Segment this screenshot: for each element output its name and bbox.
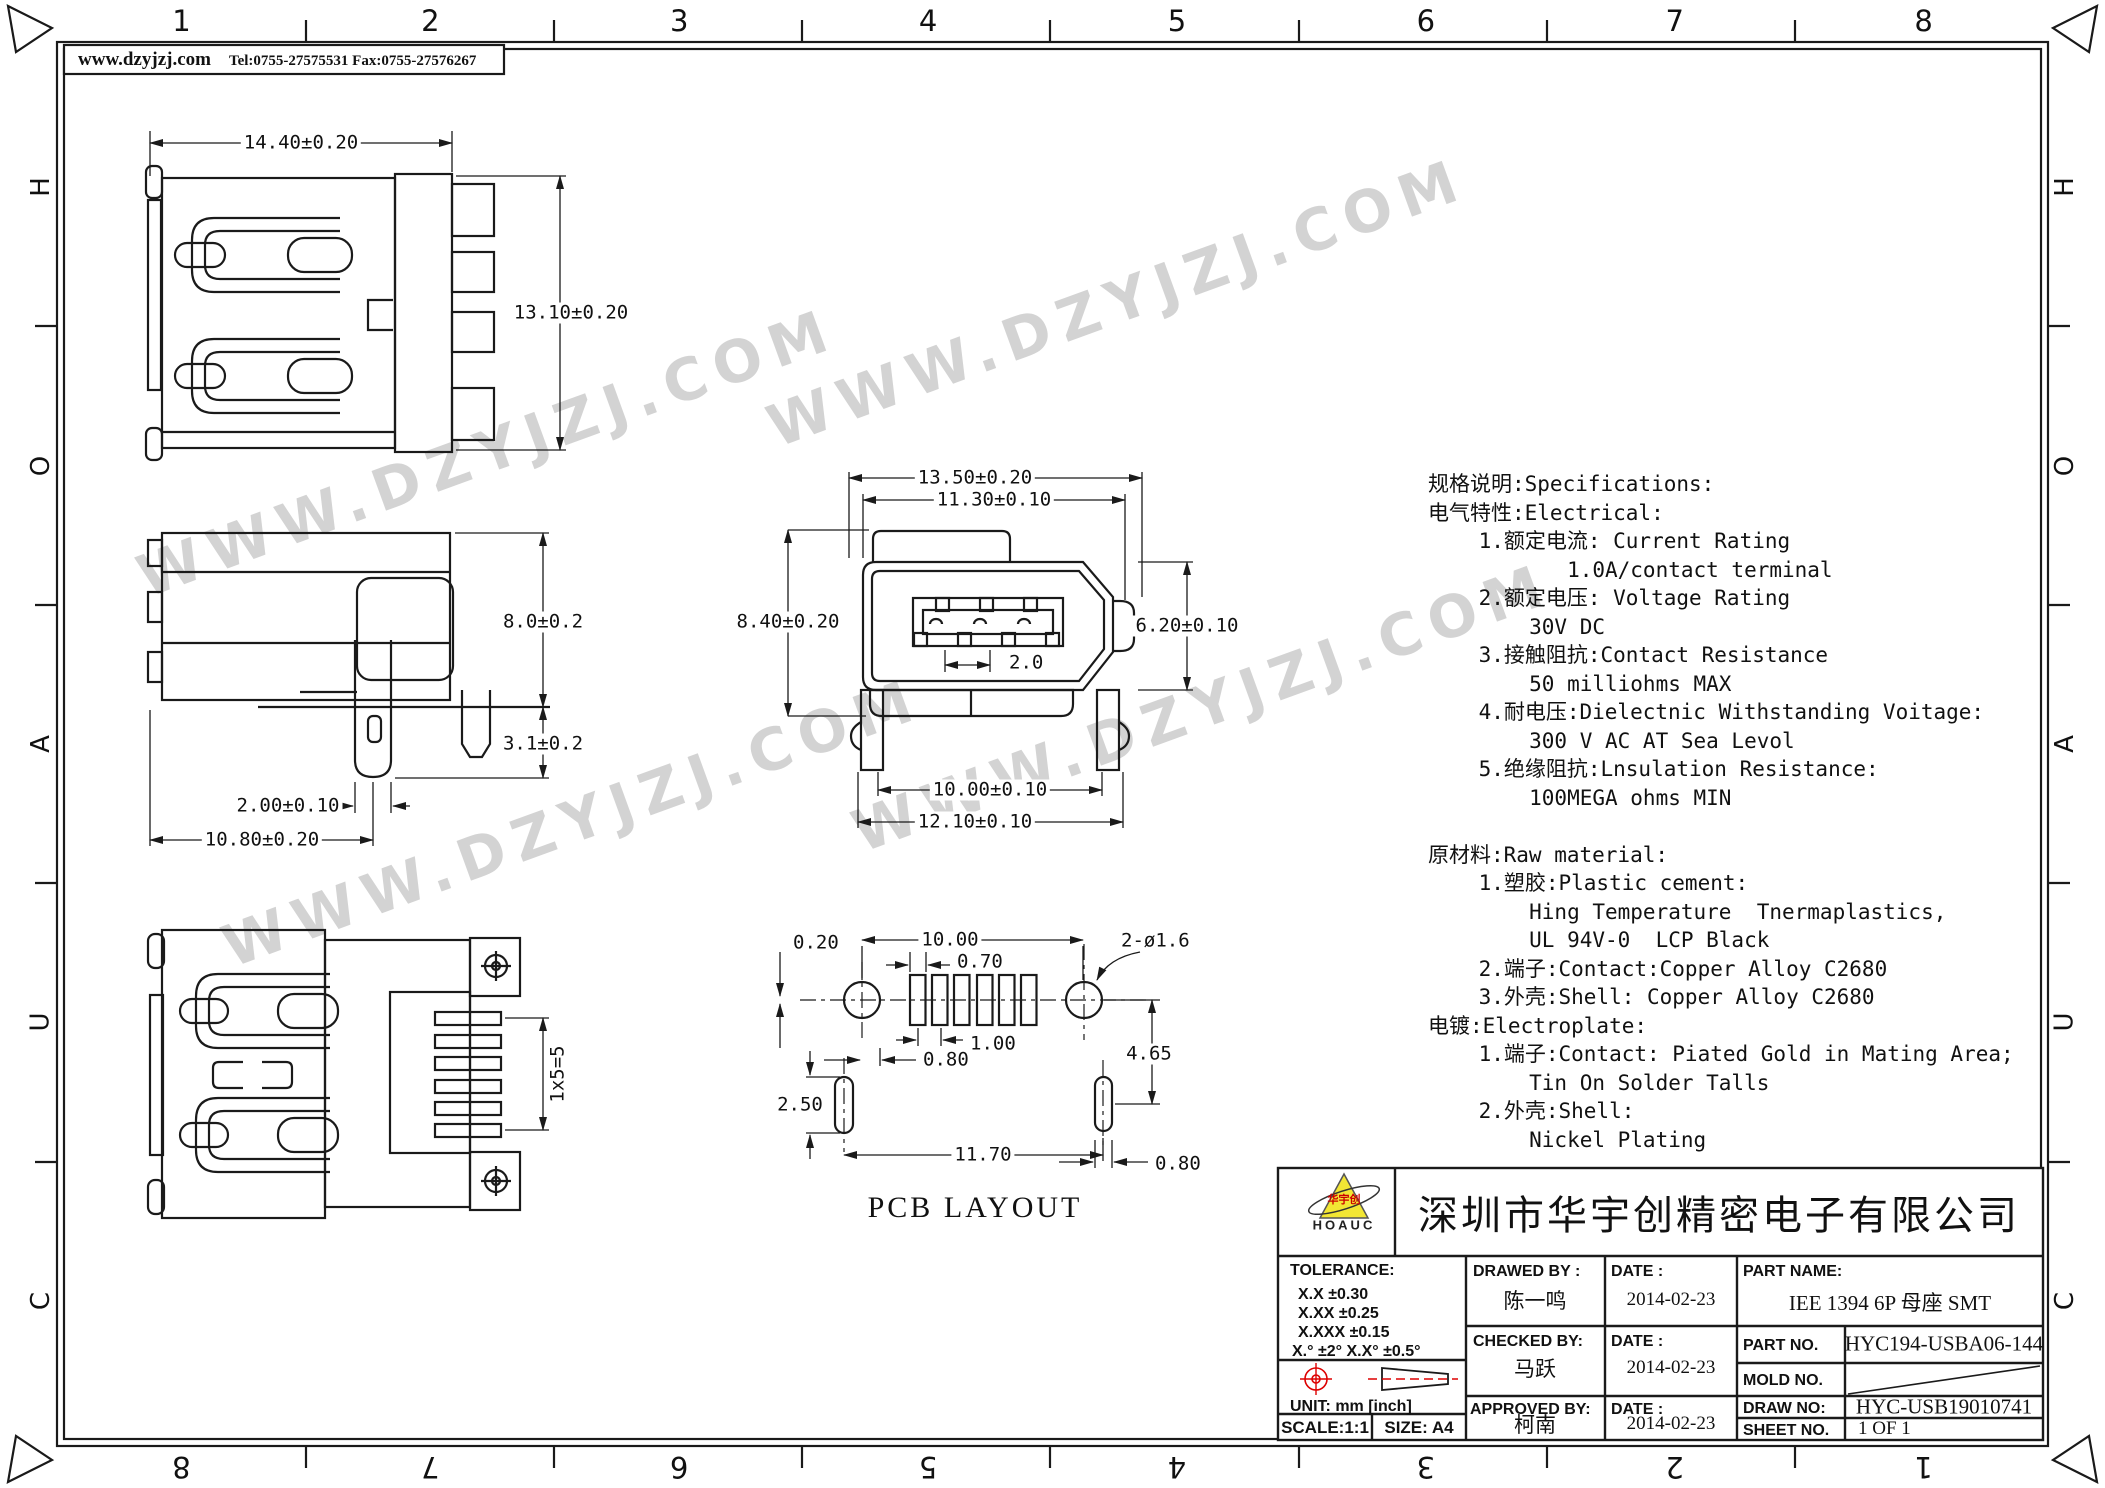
logo-en-text: HOAUC [1313,1218,1376,1233]
tolerance-row: X.X ±0.30 [1298,1286,1368,1304]
col-label: 7 [1550,2,1799,40]
dim-front-pitch: 2.0 [1006,653,1046,674]
spec-line: 30V DC [1428,613,2014,642]
view-front-dims [788,472,1193,828]
view-side-dims [150,533,549,846]
spec-line: Nickel Plating [1428,1126,2014,1155]
specifications-block: 规格说明:Specifications:电气特性:Electrical: 1.额… [1428,470,2014,1154]
tolerance-label: TOLERANCE: [1290,1262,1395,1280]
dim-side-depth: 10.80±0.20 [202,830,322,851]
dim-side-height: 8.0±0.2 [500,612,586,633]
dim-front-height: 8.40±0.20 [734,612,843,633]
dim-pcb-080a: 0.80 [920,1050,972,1071]
spec-line: 电镀:Electroplate: [1428,1012,2014,1041]
col-label: 6 [555,1448,804,1486]
row-label: C [26,1292,56,1310]
dim-front-outer-width: 13.50±0.20 [915,468,1035,489]
size-label: SIZE: A4 [1384,1418,1453,1438]
part-name-value: IEE 1394 6P 母座 SMT [1789,1287,1991,1317]
dim-rear-width: 14.40±0.20 [241,133,361,154]
spec-line: Hing Temperature Tnermaplastics, [1428,898,2014,927]
checked-by-name: 马跃 [1514,1353,1556,1383]
unit-label: UNIT: mm [inch] [1290,1398,1412,1416]
view-top [148,930,520,1218]
col-label: 2 [306,2,555,40]
spec-line: 100MEGA ohms MIN [1428,784,2014,813]
col-label: 1 [57,2,306,40]
spec-line: 2.端子:Contact:Copper Alloy C2680 [1428,955,2014,984]
view-top-dims [505,1018,549,1130]
top-ruler: 1 2 3 4 5 6 7 8 [57,2,2048,40]
spec-line: 5.绝缘阻抗:Lnsulation Resistance: [1428,755,2014,784]
left-ruler: H O A U C [26,48,56,1440]
dim-pcb-250: 2.50 [774,1095,826,1116]
mold-no-label: MOLD NO. [1743,1372,1823,1390]
date-label: DATE : [1611,1333,1663,1351]
dim-top-pin-span: 1x5=5 [548,1042,569,1105]
spec-line: 原材料:Raw material: [1428,841,2014,870]
spec-line: 50 milliohms MAX [1428,670,2014,699]
spec-line: 1.0A/contact terminal [1428,556,2014,585]
corner-arrow-icon [2053,1436,2097,1482]
drawed-by-name: 陈一鸣 [1504,1285,1567,1315]
col-label: 1 [1799,1448,2048,1486]
drawed-by-label: DRAWED BY : [1473,1263,1580,1281]
col-label: 4 [1053,1448,1302,1486]
pcb-layout-title: PCB LAYOUT [868,1191,1083,1225]
row-label: H [26,177,56,197]
draw-no-label: DRAW NO: [1743,1400,1826,1418]
part-no-label: PART NO. [1743,1337,1818,1355]
col-label: 4 [804,2,1053,40]
view-front [851,531,1134,770]
dim-rear-height: 13.10±0.20 [511,303,631,324]
spec-line: 4.耐电压:Dielectnic Withstanding Voitage: [1428,698,2014,727]
spec-line: 300 V AC AT Sea Levol [1428,727,2014,756]
part-name-label: PART NAME: [1743,1263,1842,1281]
dim-side-offset: 2.00±0.10 [234,796,343,817]
spec-line: 1.塑胶:Plastic cement: [1428,869,2014,898]
part-no-value: HYC194-USBA06-144 [1845,1332,2043,1357]
website-text: www.dzyjzj.com [78,49,211,70]
spec-line: Tin On Solder Talls [1428,1069,2014,1098]
dim-front-opening: 6.20±0.10 [1133,616,1242,637]
sheet-no-value: 1 OF 1 [1858,1418,1911,1440]
checked-by-label: CHECKED BY: [1473,1333,1583,1351]
spec-line: 1.额定电流: Current Rating [1428,527,2014,556]
bottom-ruler: 1 2 3 4 5 6 7 8 [57,1448,2048,1486]
dim-pcb-070: 0.70 [954,952,1006,973]
row-label: A [26,735,56,753]
date-label: DATE : [1611,1263,1663,1281]
row-label: O [2050,455,2080,475]
view-rear [146,166,494,460]
dim-pcb-1000: 10.00 [918,930,981,951]
draw-no-value: HYC-USB19010741 [1856,1395,2032,1420]
col-label: 6 [1301,2,1550,40]
spec-line: 电气特性:Electrical: [1428,499,2014,528]
sheet-no-label: SHEET NO. [1743,1422,1829,1440]
spec-line: 3.外壳:Shell: Copper Alloy C2680 [1428,983,2014,1012]
drawing-sheet: WWW.DZYJZJ.COM WWW.DZYJZJ.COM WWW.DZYJZJ… [0,0,2105,1488]
row-label: C [2050,1292,2080,1310]
dim-pcb-080b: 0.80 [1152,1154,1204,1175]
tolerance-row: X.XX ±0.25 [1298,1305,1379,1323]
company-name: 深圳市华宇创精密电子有限公司 [1418,1183,2020,1241]
date-value: 2014-02-23 [1627,1413,1716,1435]
col-label: 5 [804,1448,1053,1486]
col-label: 8 [1799,2,2048,40]
corner-arrow-icon [8,6,52,52]
dim-pcb-465: 4.65 [1123,1044,1175,1065]
spec-line: 规格说明:Specifications: [1428,470,2014,499]
spec-line: 1.端子:Contact: Piated Gold in Mating Area… [1428,1040,2014,1069]
col-label: 2 [1550,1448,1799,1486]
row-label: H [2050,177,2080,197]
dim-pcb-holes: 2-ø1.6 [1118,931,1193,952]
tolerance-row: X.XXX ±0.15 [1298,1324,1390,1342]
logo-cn-text: 华宇创 [1328,1191,1361,1207]
approved-by-name: 柯南 [1514,1409,1556,1439]
right-ruler: H O A U C [2050,48,2080,1440]
corner-arrow-icon [2053,6,2097,52]
col-label: 3 [1301,1448,1550,1486]
date-value: 2014-02-23 [1627,1357,1716,1379]
spec-line: UL 94V-0 LCP Black [1428,926,2014,955]
header-contact: www.dzyjzj.com Tel:0755-27575531 Fax:075… [78,49,476,71]
tel-fax-text: Tel:0755-27575531 Fax:0755-27576267 [229,53,476,69]
row-label: U [2050,1013,2080,1032]
spec-line: 2.额定电压: Voltage Rating [1428,584,2014,613]
tolerance-angles: X.° ±2° X.X° ±0.5° [1292,1343,1421,1361]
col-label: 3 [555,2,804,40]
col-label: 5 [1053,2,1302,40]
dim-pcb-020: 0.20 [790,933,842,954]
row-label: O [26,455,56,475]
dim-side-pin: 3.1±0.2 [500,734,586,755]
spec-line: 2.外壳:Shell: [1428,1097,2014,1126]
dim-pcb-1170: 11.70 [951,1145,1014,1166]
dim-front-leg-span: 10.00±0.10 [930,780,1050,801]
view-side [148,533,550,777]
col-label: 8 [57,1448,306,1486]
corner-arrow-icon [8,1436,52,1482]
dim-front-inner-width: 11.30±0.10 [934,490,1054,511]
dim-front-total-width: 12.10±0.10 [915,812,1035,833]
col-label: 7 [306,1448,555,1486]
scale-label: SCALE:1:1 [1281,1418,1369,1438]
spec-line [1428,812,2014,841]
row-label: A [2050,735,2080,753]
spec-line: 3.接触阻抗:Contact Resistance [1428,641,2014,670]
row-label: U [26,1013,56,1032]
date-value: 2014-02-23 [1627,1289,1716,1311]
dim-pcb-100: 1.00 [967,1034,1019,1055]
